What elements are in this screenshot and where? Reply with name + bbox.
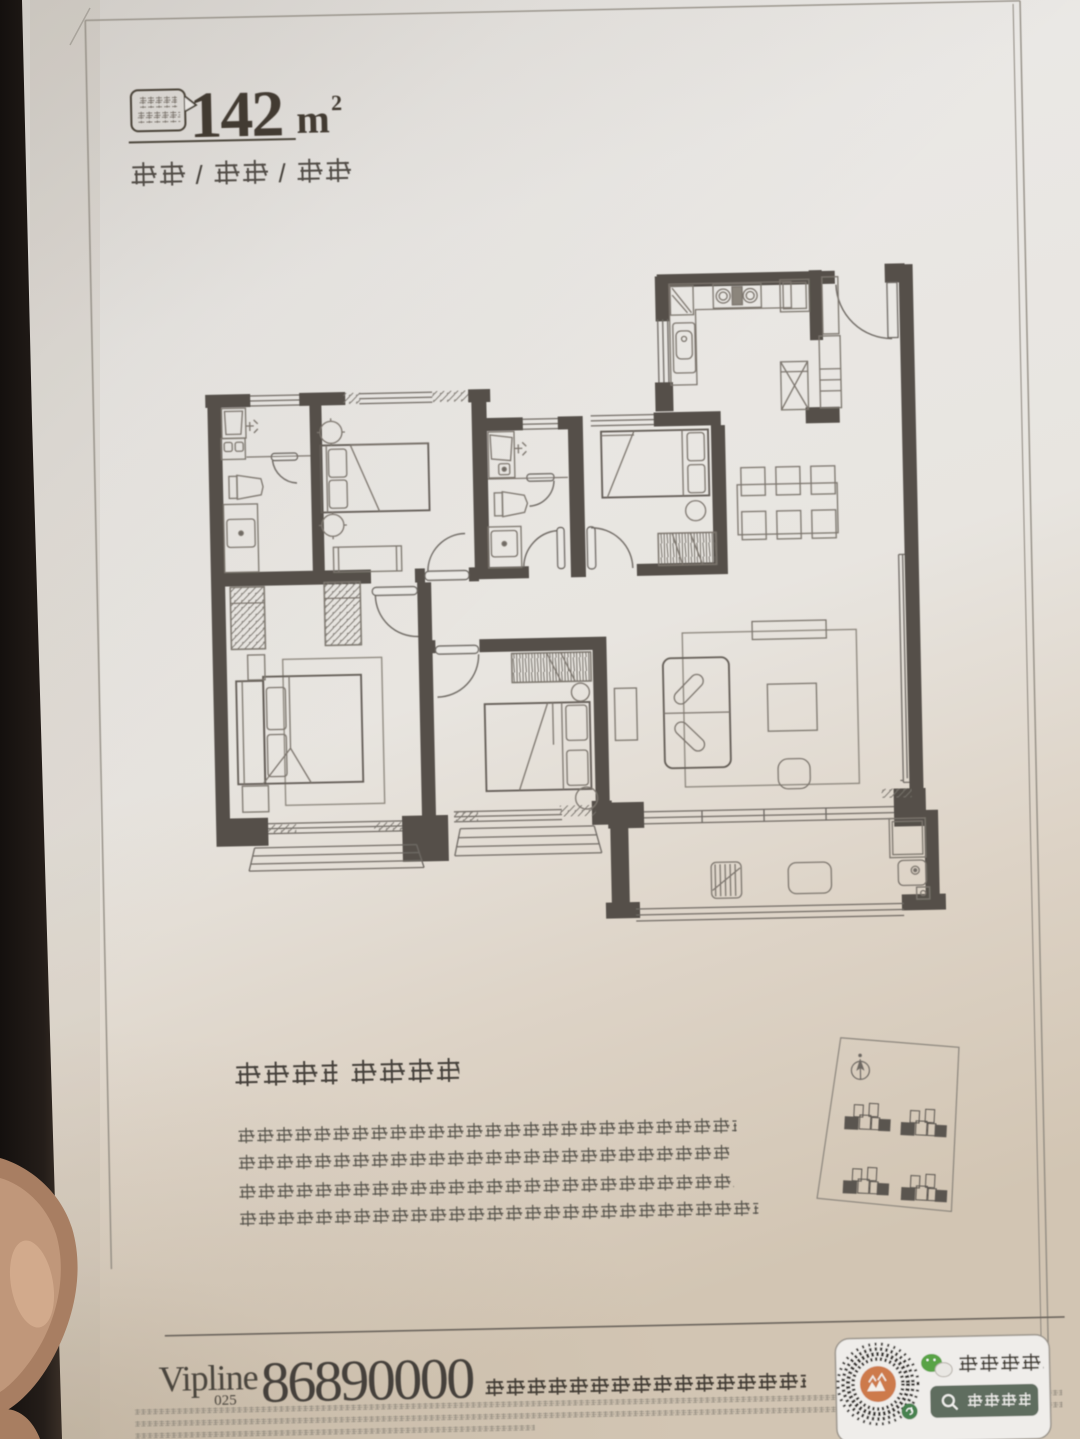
svg-text:025: 025 xyxy=(214,1393,237,1409)
svg-text:m: m xyxy=(296,96,330,142)
svg-text:Vipline: Vipline xyxy=(158,1357,258,1399)
svg-text:2: 2 xyxy=(331,90,343,115)
